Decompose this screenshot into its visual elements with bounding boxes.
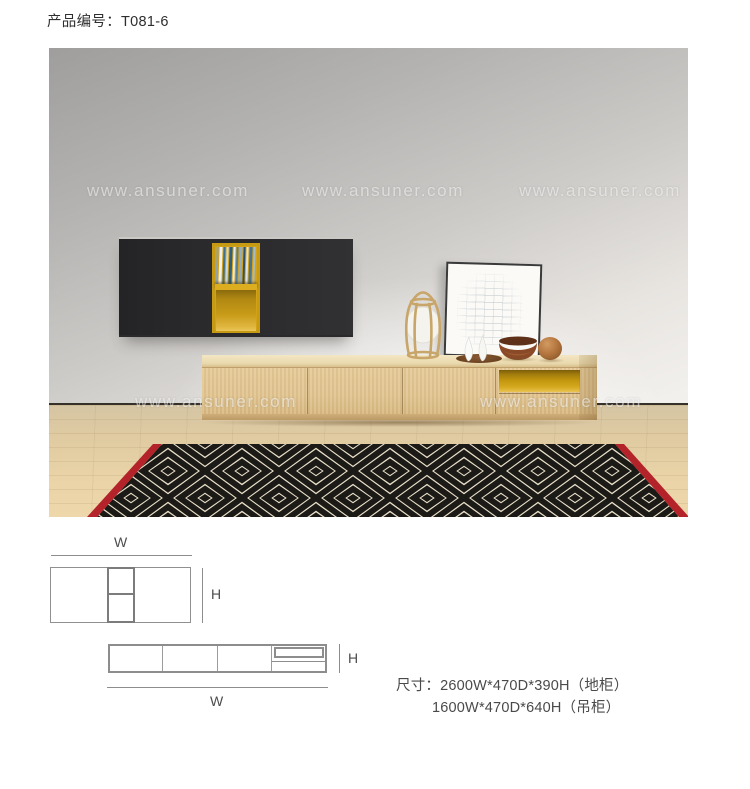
sphere-shadow <box>537 358 565 363</box>
tv-stand-open-niche <box>499 370 580 392</box>
diagram2-height-label: H <box>348 650 358 666</box>
diagram1-width-line <box>51 555 192 556</box>
dimension-line-2: 1600W*470D*640H（吊柜） <box>432 696 620 717</box>
diagram1-width-label: W <box>114 534 127 550</box>
watermark-text: www.ansuner.com <box>87 181 249 201</box>
diagram2-width-label: W <box>210 693 223 709</box>
diagram1-shelf-divider <box>107 593 135 595</box>
watermark-text: www.ansuner.com <box>135 392 297 412</box>
diagram2-width-line <box>107 687 328 688</box>
diagram2-divider <box>162 646 163 671</box>
wood-sphere <box>538 337 562 360</box>
book-row <box>215 247 256 284</box>
diagram1-shelf-outline <box>107 567 135 623</box>
wall-cabinet-right-door <box>260 239 353 335</box>
diagram2-divider <box>271 646 272 671</box>
drawer-seam <box>402 368 403 414</box>
empty-shelf-cell <box>216 290 256 331</box>
diagram2-shelf-line <box>272 661 326 662</box>
watermark-text: www.ansuner.com <box>519 181 681 201</box>
wall-cabinet <box>119 237 353 337</box>
diagram1-height-label: H <box>211 586 221 602</box>
tv-stand-base <box>202 414 597 420</box>
watermark-text: www.ansuner.com <box>302 181 464 201</box>
watermark-text: www.ansuner.com <box>480 392 642 412</box>
wall-cabinet-left-door <box>119 239 212 335</box>
bowl-shadow <box>497 357 539 362</box>
diagram2-height-line <box>339 644 340 673</box>
wall-cabinet-open-shelf <box>212 243 260 333</box>
product-photo: www.ansuner.com www.ansuner.com www.ansu… <box>49 48 688 517</box>
white-vases <box>459 334 495 362</box>
product-code-label: 产品编号：T081-6 <box>47 10 169 31</box>
lantern-lamp <box>398 282 448 362</box>
rug-pattern-area <box>97 444 679 517</box>
dimension-line-1: 尺寸：2600W*470D*390H（地柜） <box>396 674 628 695</box>
drawer-seam <box>307 368 308 414</box>
diagram2-niche-outline <box>274 647 324 658</box>
diagram2-divider <box>217 646 218 671</box>
diagram1-height-line <box>202 568 203 623</box>
book-spine <box>252 247 256 284</box>
